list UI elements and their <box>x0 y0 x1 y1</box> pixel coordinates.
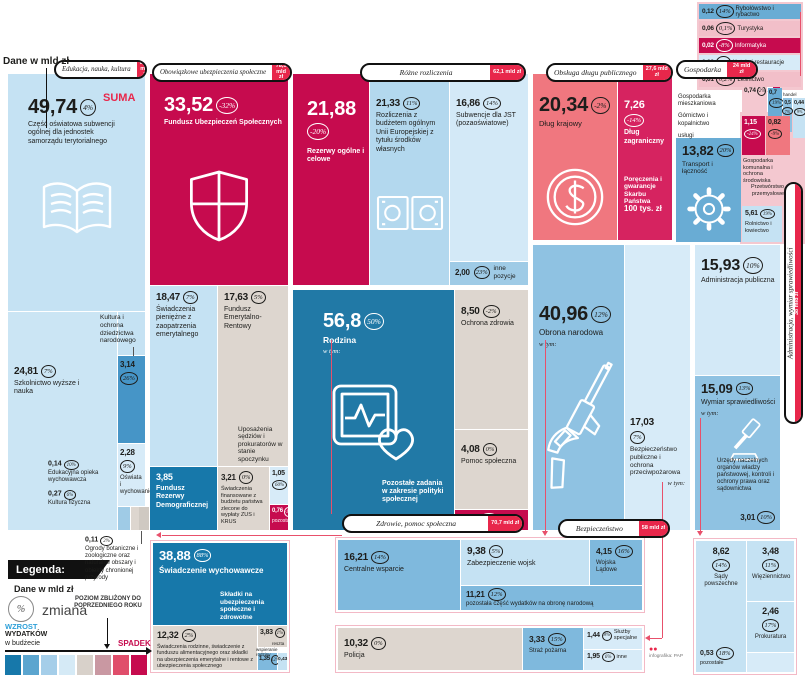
tile-oswiata: 2,289% Oświata i wychowanie <box>118 444 145 506</box>
tile-subwencja-oswiatowa: 49,744% Część oświatowa subwencji ogólne… <box>8 74 145 311</box>
przetworstwo-label: Przetwórstwo przemysłowe <box>744 184 784 197</box>
tile-policja: 10,320% Policja <box>338 628 522 670</box>
poreczenia-note: Poręczenia i gwarancje Skarbu Państwa <box>624 176 668 206</box>
tile-105: 1,0560% <box>270 467 288 504</box>
swatch-6 <box>95 655 111 675</box>
tile-transport: 13,8220% Transport i łączność <box>676 138 741 242</box>
tile-wojska-ladowe: 4,1516% Wojska Lądowe <box>590 540 642 585</box>
tile-wymiar-sprawiedliwosci: 15,0913% Wymiar sprawiedliwości w tym: U… <box>695 376 780 530</box>
connector-bezppubl-h <box>650 638 662 639</box>
reszta-label: reszta <box>272 641 288 646</box>
legend-poziom-arrow <box>104 644 110 649</box>
tile-sady-powszechne: 8,6214% Sądy powszechne 0,53 18% pozosta… <box>696 541 746 672</box>
tile-swiadczenia-rodzinne: 12,322% Świadczenia rodzinne, świadczeni… <box>153 626 257 670</box>
tile-fer: 17,635% Fundusz Emerytalno-Rentowy Uposa… <box>218 286 288 466</box>
tile-przetworstwo: 0,82-9% <box>766 116 790 155</box>
legend-poziom-line <box>107 618 108 644</box>
shield-icon <box>185 166 253 246</box>
tile-rodzina: 56,850% Rodzina w tym: Pozostałe zadania… <box>293 290 454 530</box>
mieszkaniowa-label: Gospodarka mieszkaniowa <box>678 94 740 108</box>
arrow-zdrowie <box>156 532 161 538</box>
tile-wieziennictwo: 3,4811% Więziennictwo <box>747 541 794 601</box>
tile-rezerwy: 21,88-20% Rezerwy ogólne i celowe <box>293 74 369 285</box>
swatch-4 <box>59 655 75 675</box>
kfiz-label: 0,27 6% Kultura fizyczna <box>48 490 110 507</box>
badge-gospodarka: Gospodarka24 mld zł <box>676 60 758 79</box>
tile-rolnictwo: 5,6119% Rolnictwo i łowiectwo <box>742 206 782 242</box>
swatch-8 <box>131 655 147 675</box>
tile-inne-pozycje: 2,0023%inne pozycje <box>450 262 528 285</box>
tile-ochrona-zdrowia: 8,50-2% Ochrona zdrowia <box>455 290 528 429</box>
tile-pomoc-spoleczna: 4,080% Pomoc społeczna <box>455 430 528 509</box>
swatch-2 <box>23 655 39 675</box>
connector-zdrowie-h <box>162 535 342 536</box>
tile-straz-pozarna: 3,3315% Straż pożarna <box>523 628 583 670</box>
swatch-3 <box>41 655 57 675</box>
units-note: Dane w mld zł <box>3 56 69 68</box>
pozostale-label: pozostałe <box>700 660 734 667</box>
tile-administracja-publiczna: 15,9310% Administracja publiczna <box>695 245 780 375</box>
gornictwo-label: Górnictwo i kopalnictwo <box>678 113 740 127</box>
tile-dlug-krajowy: 20,34-2% Dług krajowy <box>533 74 617 240</box>
tile-prokuratura: 2,4617% Prokuratura <box>747 602 794 652</box>
wtym-wymiar: w tym: <box>701 410 776 417</box>
health-heart-icon <box>324 378 424 470</box>
suma-label: SUMA <box>103 92 135 105</box>
swatch-5 <box>77 655 93 675</box>
handel-label: handel <box>783 92 797 97</box>
mini-informatyka: 0,02-8%Informatyka <box>699 38 801 53</box>
wtym-bezppubl: w tym: <box>630 480 685 487</box>
arrow-policja <box>645 635 650 641</box>
units-leader-line <box>46 68 47 128</box>
wtym-rodzina: w tym: <box>323 348 450 355</box>
swatch-1 <box>5 655 21 675</box>
legend-units: Dane w mld zł <box>14 584 74 595</box>
leader-line <box>133 347 134 356</box>
swatch-7 <box>113 655 129 675</box>
tile-pozostale-strip <box>747 653 794 672</box>
arrow-sady <box>697 531 703 536</box>
uslugi-label: usługi <box>678 133 740 140</box>
tile-ogrody-box <box>139 507 149 530</box>
tile-pozostala-obrona: 11,2112% pozostała część wydatków na obr… <box>461 586 642 610</box>
tile-zus-krus: 3,210% Świadczenia finansowane z budżetu… <box>218 467 269 530</box>
tile-sluzby-specjalne: 1,448%Służby specjalne <box>584 628 642 649</box>
badge-dlug: Obsługa długu publicznego27,6 mld zł <box>546 63 673 82</box>
wtym-obrona: w tym: <box>539 341 620 348</box>
tile-subwencje-jst: 16,8614% Subwencje dla JST (pozaoświatow… <box>450 74 528 261</box>
banknotes-icon <box>374 189 446 237</box>
tile-kultura-dziedzictwo: 3,1426% <box>118 356 145 443</box>
tile-ue-rozliczenia: 21,3311% Rozliczenia z budżetem ogólnym … <box>370 74 449 285</box>
tile-centralne-wsparcie: 16,2114% Centralne wsparcie <box>338 540 460 610</box>
gospodarka-side-labels: Gospodarka mieszkaniowa Górnictwo i kopa… <box>678 94 740 140</box>
tile-bezpieczenstwo-publiczne: 17,037% Bezpieczeństwo publiczne i ochro… <box>625 245 690 530</box>
tile-swiadczenie-wychowawcze: 38,8888% Świadczenie wychowawcze Składki… <box>153 543 287 625</box>
tile-dlug-zagraniczny: 7,26-14% Dług zagraniczny Poręczenia i g… <box>618 74 672 240</box>
connector-bezppubl-v <box>662 482 663 638</box>
legend-axis-arrow <box>146 647 152 655</box>
book-icon <box>37 178 117 240</box>
badge-administracja: Administracja, wymiar sprawiedliwości38 … <box>784 182 803 424</box>
mini-ryby: 0,1214%Rybołówstwo i rybactwo <box>699 4 801 19</box>
gear-icon <box>682 182 736 236</box>
legend-wzrost: WZROST WYDATKÓW w budżecie <box>5 622 47 649</box>
tile-handel: 0,449% <box>793 98 805 138</box>
badge-bezpieczenstwo: Bezpieczeństwo58 mld zł <box>558 519 670 538</box>
badge-zdrowie: Zdrowie, pomoc społeczna70,7 mld zł <box>342 514 524 533</box>
tile-fus: 33,52-32% Fundusz Ubezpieczeń Społecznyc… <box>150 74 288 285</box>
dollar-coin-icon <box>544 166 606 228</box>
tile-inne-bezp: 1,956%inne <box>584 650 642 670</box>
opieka-label: 0,14 10% Edukacyjna opieka wychowawcza <box>48 460 110 484</box>
ogrody-label: 0,11 2% Ogrody botaniczne i zoologiczne … <box>85 536 153 582</box>
tile-obrona-narodowa: 40,9612% Obrona narodowa w tym: <box>533 245 624 530</box>
tile-frd: 3,85 Fundusz Rezerwy Demograficznej <box>150 467 217 530</box>
tile-zabezpieczenie-wojsk: 9,385% Zabezpieczenie wojsk <box>461 540 589 585</box>
badge-ubezpieczenia: Obowiązkowe ubezpieczenia społeczne78,5 … <box>152 63 292 82</box>
arrow-obrona <box>542 531 548 536</box>
legend-axis <box>5 650 146 652</box>
tile-emerytalne: 18,477% Świadczenia pieniężne z zaopatrz… <box>150 286 217 466</box>
mini-turystyka: 0,060,1%Turystyka <box>699 21 801 36</box>
urzedy-note: Urzędy naczelnych organów władzy państwo… <box>717 458 775 492</box>
connector-obrona <box>545 340 546 533</box>
kultura-label: Kultura i ochrona dziedzictwa narodowego <box>100 314 146 345</box>
tile-076-pozostale: 0,76-1% pozostałe <box>270 505 288 530</box>
legend-poziom: POZIOM ZBLIŻONY DO POPRZEDNIEGO ROKU <box>62 596 154 610</box>
credit: ●● infografika: PAP <box>649 646 695 660</box>
badge-rozliczenia: Różne rozliczenia62,1 mld zł <box>360 63 526 82</box>
infographic-canvas: 49,744% Część oświatowa subwencji ogólne… <box>0 0 805 679</box>
connector-wymiar <box>700 418 701 532</box>
connector-mini-list <box>800 12 801 76</box>
fer-note: Uposażenia sędziów i prokuratorów w stan… <box>238 426 284 463</box>
wspieranie-label: wspieranie rodziny <box>256 647 288 658</box>
komunalna-label: Gospodarka komunalna i ochrona środowisk… <box>743 158 791 184</box>
tile-mieszkaniowa: 0,74-2% <box>742 84 767 112</box>
rodzina-note: Pozostałe zadania w zakresie polityki sp… <box>382 480 446 504</box>
tile-komunalna: 1,15-24% <box>742 116 765 155</box>
connector-rodzina <box>331 340 332 514</box>
legend-pct-circle: % <box>8 596 34 622</box>
tile-kultura-fizyczna-box <box>118 507 130 530</box>
skladki-note: Składki na ubezpieczenia społeczne i zdr… <box>220 591 282 621</box>
poreczenia-value: 100 tys. zł <box>624 204 668 213</box>
